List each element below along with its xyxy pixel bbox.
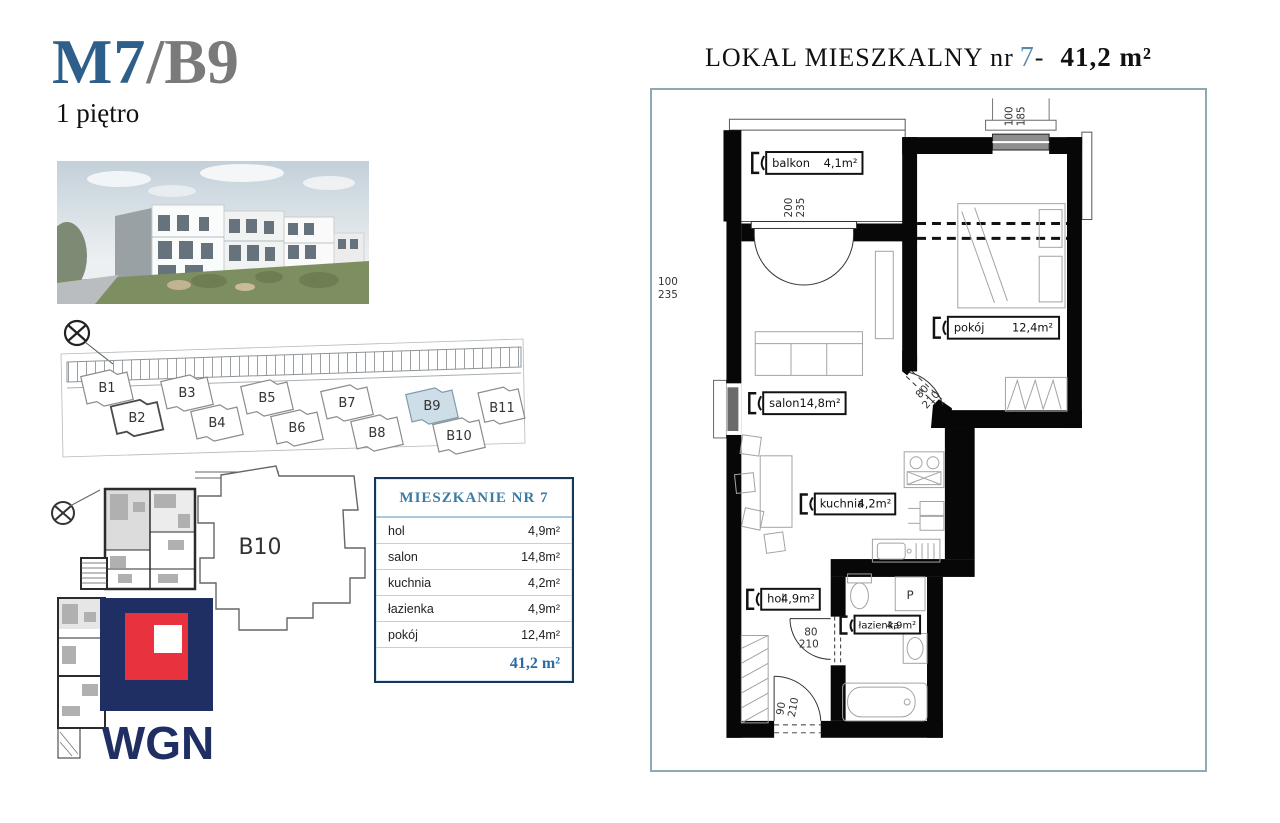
svg-text:200: 200 bbox=[783, 198, 795, 218]
room-name: salon bbox=[388, 550, 418, 564]
unit-code: M7 bbox=[52, 26, 146, 97]
tv-cabinet bbox=[875, 251, 893, 338]
table-row: hol 4,9m² bbox=[376, 518, 572, 544]
svg-text:pokój: pokój bbox=[954, 321, 985, 335]
dim-entry-door: 90 210 bbox=[774, 694, 801, 718]
table-row: kuchnia 4,2m² bbox=[376, 570, 572, 596]
apartment-brochure-page: M7/B9 1 piętro bbox=[0, 0, 1280, 823]
wgn-logo-white-square bbox=[154, 625, 182, 653]
site-label-b6: B6 bbox=[288, 421, 305, 436]
svg-text:100: 100 bbox=[1003, 106, 1015, 126]
svg-text:210: 210 bbox=[786, 697, 801, 719]
svg-text:14,8m²: 14,8m² bbox=[800, 396, 841, 410]
dim-bath-door: 80 210 bbox=[799, 627, 819, 651]
site-plan: B1 B2 B3 B4 B5 B6 B7 B8 B9 B10 B11 bbox=[55, 316, 535, 461]
wgn-logo-mark bbox=[100, 598, 213, 711]
site-label-b3: B3 bbox=[178, 386, 195, 401]
site-label-b8: B8 bbox=[368, 426, 385, 441]
parking-strip bbox=[67, 347, 521, 382]
plan-header-separator: - bbox=[1035, 43, 1045, 72]
compass-icon bbox=[52, 490, 100, 524]
svg-text:4,9m²: 4,9m² bbox=[781, 592, 815, 606]
site-label-b2: B2 bbox=[128, 411, 145, 426]
svg-text:4,1m²: 4,1m² bbox=[824, 156, 858, 170]
salon-window bbox=[726, 383, 741, 435]
site-label-b11: B11 bbox=[489, 401, 514, 416]
wardrobe-hol bbox=[741, 636, 768, 723]
site-label-b9: B9 bbox=[423, 399, 440, 414]
bed bbox=[958, 204, 1065, 308]
site-label-b4: B4 bbox=[208, 416, 225, 431]
site-label-b1: B1 bbox=[98, 381, 115, 396]
svg-text:balkon: balkon bbox=[772, 156, 810, 170]
room-label-pokoj: pokój 12,4m² bbox=[934, 317, 1059, 339]
svg-text:235: 235 bbox=[658, 289, 678, 301]
unit-building: /B9 bbox=[146, 26, 238, 97]
north-compass-icon bbox=[65, 321, 113, 364]
plan-header-total-area: 41,2 m² bbox=[1060, 42, 1152, 72]
svg-text:80: 80 bbox=[804, 627, 817, 639]
dim-balcony-door: 200 235 bbox=[783, 198, 807, 218]
svg-text:4,9m²: 4,9m² bbox=[887, 621, 916, 632]
area-summary-table: MIESZKANIE NR 7 hol 4,9m² salon 14,8m² k… bbox=[374, 477, 574, 683]
room-area: 14,8m² bbox=[521, 550, 560, 564]
svg-text:185: 185 bbox=[1015, 106, 1027, 126]
svg-text:12,4m²: 12,4m² bbox=[1012, 321, 1053, 335]
exterior-step bbox=[1082, 132, 1092, 219]
room-area: 12,4m² bbox=[521, 628, 560, 642]
table-title: MIESZKANIE NR 7 bbox=[376, 479, 572, 518]
floor-plan-header: LOKAL MIESZKALNY nr7-41,2 m² bbox=[650, 42, 1207, 74]
svg-text:4,2m²: 4,2m² bbox=[857, 496, 891, 510]
wgn-logo-text: WGN bbox=[96, 716, 220, 770]
room-area: 4,9m² bbox=[528, 524, 560, 538]
window-sill-outline bbox=[714, 380, 727, 438]
table-row: łazienka 4,9m² bbox=[376, 596, 572, 622]
room-name: hol bbox=[388, 524, 405, 538]
b10-outline: B10 bbox=[195, 466, 365, 630]
svg-text:235: 235 bbox=[795, 198, 807, 218]
dim-top-window: 100 185 bbox=[1003, 106, 1027, 126]
room-area: 4,9m² bbox=[528, 602, 560, 616]
sofa bbox=[755, 332, 862, 376]
room-label-hol: hol 4,9m² bbox=[747, 589, 819, 610]
room-area: 4,2m² bbox=[528, 576, 560, 590]
balcony-door bbox=[751, 222, 856, 286]
svg-text:salon: salon bbox=[769, 396, 799, 410]
room-label-salon: salon 14,8m² bbox=[749, 392, 845, 414]
building-photo bbox=[57, 161, 369, 304]
bathroom-fittings bbox=[843, 574, 927, 721]
site-label-b7: B7 bbox=[338, 396, 355, 411]
b10-outline-label: B10 bbox=[238, 535, 281, 560]
room-name: pokój bbox=[388, 628, 418, 642]
plan-header-number: 7 bbox=[1020, 42, 1035, 73]
site-label-b5: B5 bbox=[258, 391, 275, 406]
svg-text:100: 100 bbox=[658, 276, 678, 288]
table-row: salon 14,8m² bbox=[376, 544, 572, 570]
unit-title-block: M7/B9 1 piętro bbox=[52, 30, 239, 127]
wgn-logo: WGN bbox=[100, 598, 220, 770]
plan-header-prefix: LOKAL MIESZKALNY nr bbox=[705, 43, 1014, 72]
dim-side-window: 100 235 bbox=[658, 276, 678, 301]
floor-plan-frame: P balkon 4,1m² pokój 12,4m² salon bbox=[650, 88, 1207, 772]
room-name: kuchnia bbox=[388, 576, 431, 590]
svg-text:210: 210 bbox=[799, 638, 819, 650]
table-total-area: 41,2 m² bbox=[376, 648, 572, 681]
table-row: pokój 12,4m² bbox=[376, 622, 572, 648]
site-label-b10: B10 bbox=[446, 429, 471, 444]
dining-set bbox=[735, 435, 792, 553]
wardrobe-pokoj bbox=[1005, 377, 1067, 411]
room-label-balkon: balkon 4,1m² bbox=[752, 152, 862, 174]
wgn-logo-red-square bbox=[125, 613, 188, 680]
pokoj-dashed-lines bbox=[917, 223, 1067, 238]
room-name: łazienka bbox=[388, 602, 434, 616]
unit-floor: 1 piętro bbox=[56, 100, 239, 127]
room-label-kuchnia: kuchnia 4,2m² bbox=[801, 494, 895, 515]
washer-label: P bbox=[907, 588, 914, 602]
room-label-lazienka: łazienka 4,9m² bbox=[841, 616, 920, 634]
floor-plan: P balkon 4,1m² pokój 12,4m² salon bbox=[652, 90, 1205, 770]
